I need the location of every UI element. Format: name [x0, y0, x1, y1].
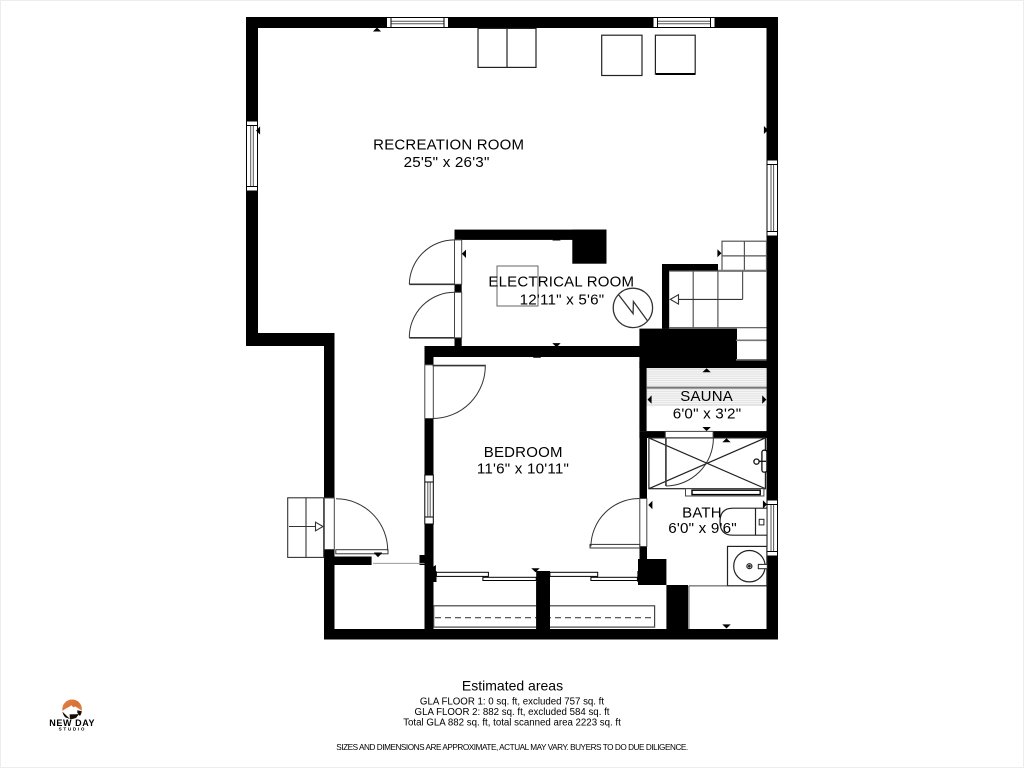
svg-text:BATH: BATH	[682, 505, 722, 522]
svg-text:RECREATION ROOM: RECREATION ROOM	[373, 137, 524, 154]
svg-text:Total GLA 882 sq. ft, total sc: Total GLA 882 sq. ft, total scanned area…	[403, 718, 621, 729]
svg-text:SIZES AND DIMENSIONS ARE APPRO: SIZES AND DIMENSIONS ARE APPROXIMATE, AC…	[336, 743, 688, 752]
svg-text:12'11" x 5'6": 12'11" x 5'6"	[520, 292, 605, 309]
svg-text:Estimated areas: Estimated areas	[462, 677, 563, 693]
svg-text:GLA FLOOR 2: 882 sq. ft, exclu: GLA FLOOR 2: 882 sq. ft, excluded 584 sq…	[415, 707, 610, 718]
svg-text:25'5" x 26'3": 25'5" x 26'3"	[404, 154, 490, 171]
svg-text:STUDIO: STUDIO	[59, 727, 87, 732]
svg-text:ELECTRICAL ROOM: ELECTRICAL ROOM	[488, 274, 634, 291]
svg-text:11'6" x 10'11": 11'6" x 10'11"	[477, 461, 569, 478]
svg-text:6'0" x 3'2": 6'0" x 3'2"	[673, 405, 742, 422]
svg-text:BEDROOM: BEDROOM	[484, 444, 563, 461]
svg-text:SAUNA: SAUNA	[680, 388, 733, 405]
svg-text:6'0" x 9'6": 6'0" x 9'6"	[668, 520, 737, 537]
svg-text:GLA FLOOR 1: 0 sq. ft, exclude: GLA FLOOR 1: 0 sq. ft, excluded 757 sq. …	[420, 697, 604, 708]
